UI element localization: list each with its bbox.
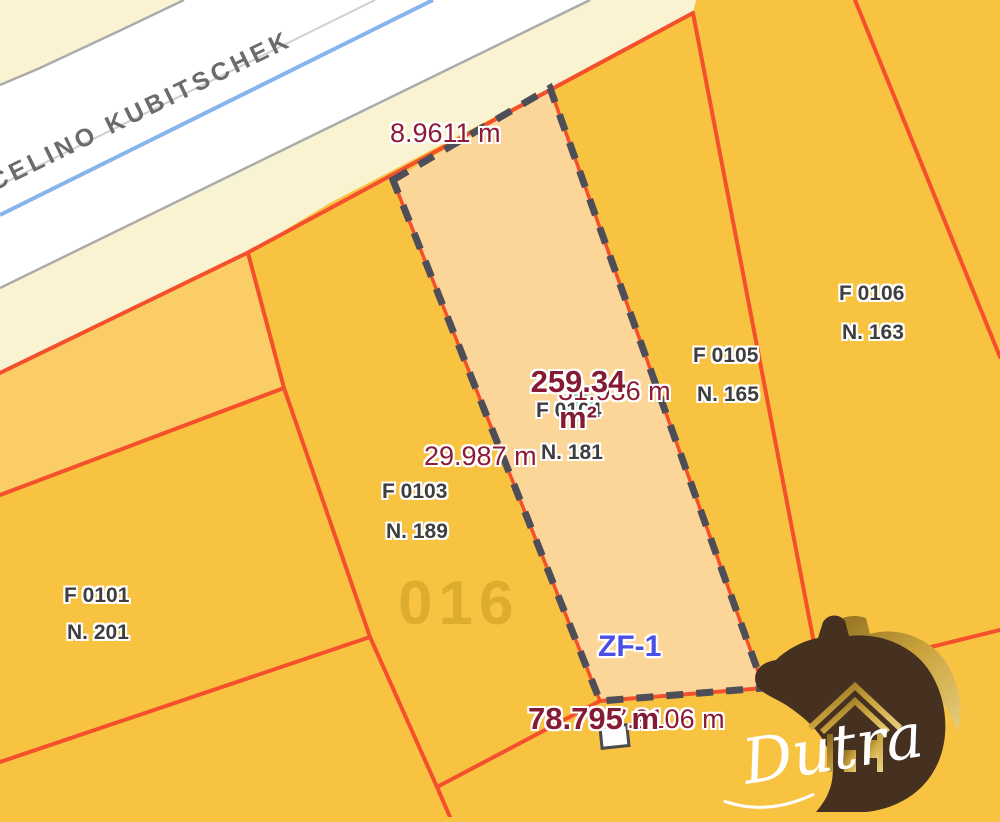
lot-area-value: 259.34 <box>512 364 644 400</box>
boundary-f0101-bottom-line <box>0 637 370 762</box>
block-number-watermark: 016 <box>398 568 519 639</box>
parcel-f0103-number-label: N. 189 <box>386 520 448 544</box>
brand-watermark-logo: Dutra <box>718 610 1000 822</box>
parcel-f0105-number-label: N. 165 <box>697 383 759 407</box>
parcel-f0101-code-label: F 0101 <box>64 584 129 608</box>
lot-left-side-measure-label: 29.987 m <box>424 441 537 472</box>
lot-front-measure-label: 8.9611 m <box>390 118 501 149</box>
zoning-label: ZF-1 <box>598 630 661 665</box>
parcel-f0101-number-label: N. 201 <box>67 621 129 645</box>
selected-lot-parcel-number-label: N. 181 <box>541 441 603 465</box>
parcel-f0106-number-label: N. 163 <box>842 321 904 345</box>
lot-area-unit: m² <box>512 400 644 436</box>
parcel-f0105-code-label: F 0105 <box>693 344 758 368</box>
lot-perimeter-label: 78.795 m <box>528 701 659 737</box>
parcel-f0103-code-label: F 0103 <box>382 480 447 504</box>
cadastral-map-view[interactable]: { "map": { "street": { "name": "JUSCELIN… <box>0 0 1000 817</box>
parcel-f0106-code-label: F 0106 <box>839 282 904 306</box>
lot-area-label: 259.34 m² <box>512 364 644 435</box>
